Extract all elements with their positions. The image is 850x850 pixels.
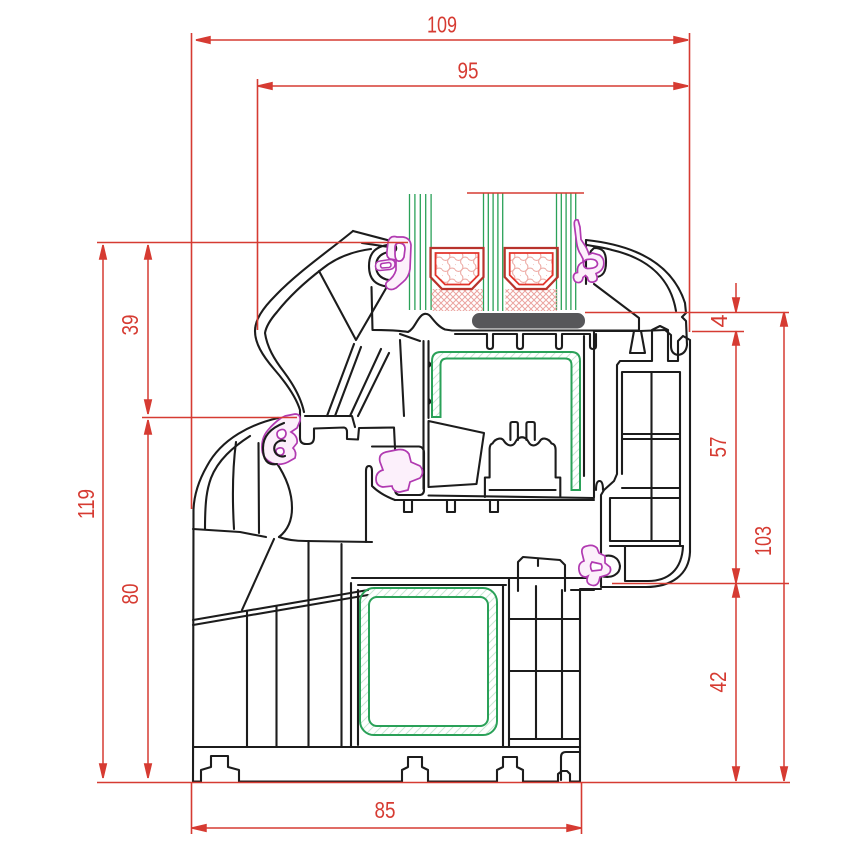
svg-text:103: 103	[750, 526, 776, 556]
svg-text:119: 119	[73, 489, 99, 519]
svg-text:42: 42	[705, 672, 731, 693]
svg-text:57: 57	[705, 437, 731, 458]
svg-text:80: 80	[117, 584, 143, 605]
svg-text:85: 85	[375, 797, 396, 823]
svg-text:109: 109	[427, 12, 457, 38]
svg-text:95: 95	[458, 58, 479, 84]
svg-text:39: 39	[117, 315, 143, 336]
svg-text:4: 4	[706, 314, 732, 327]
